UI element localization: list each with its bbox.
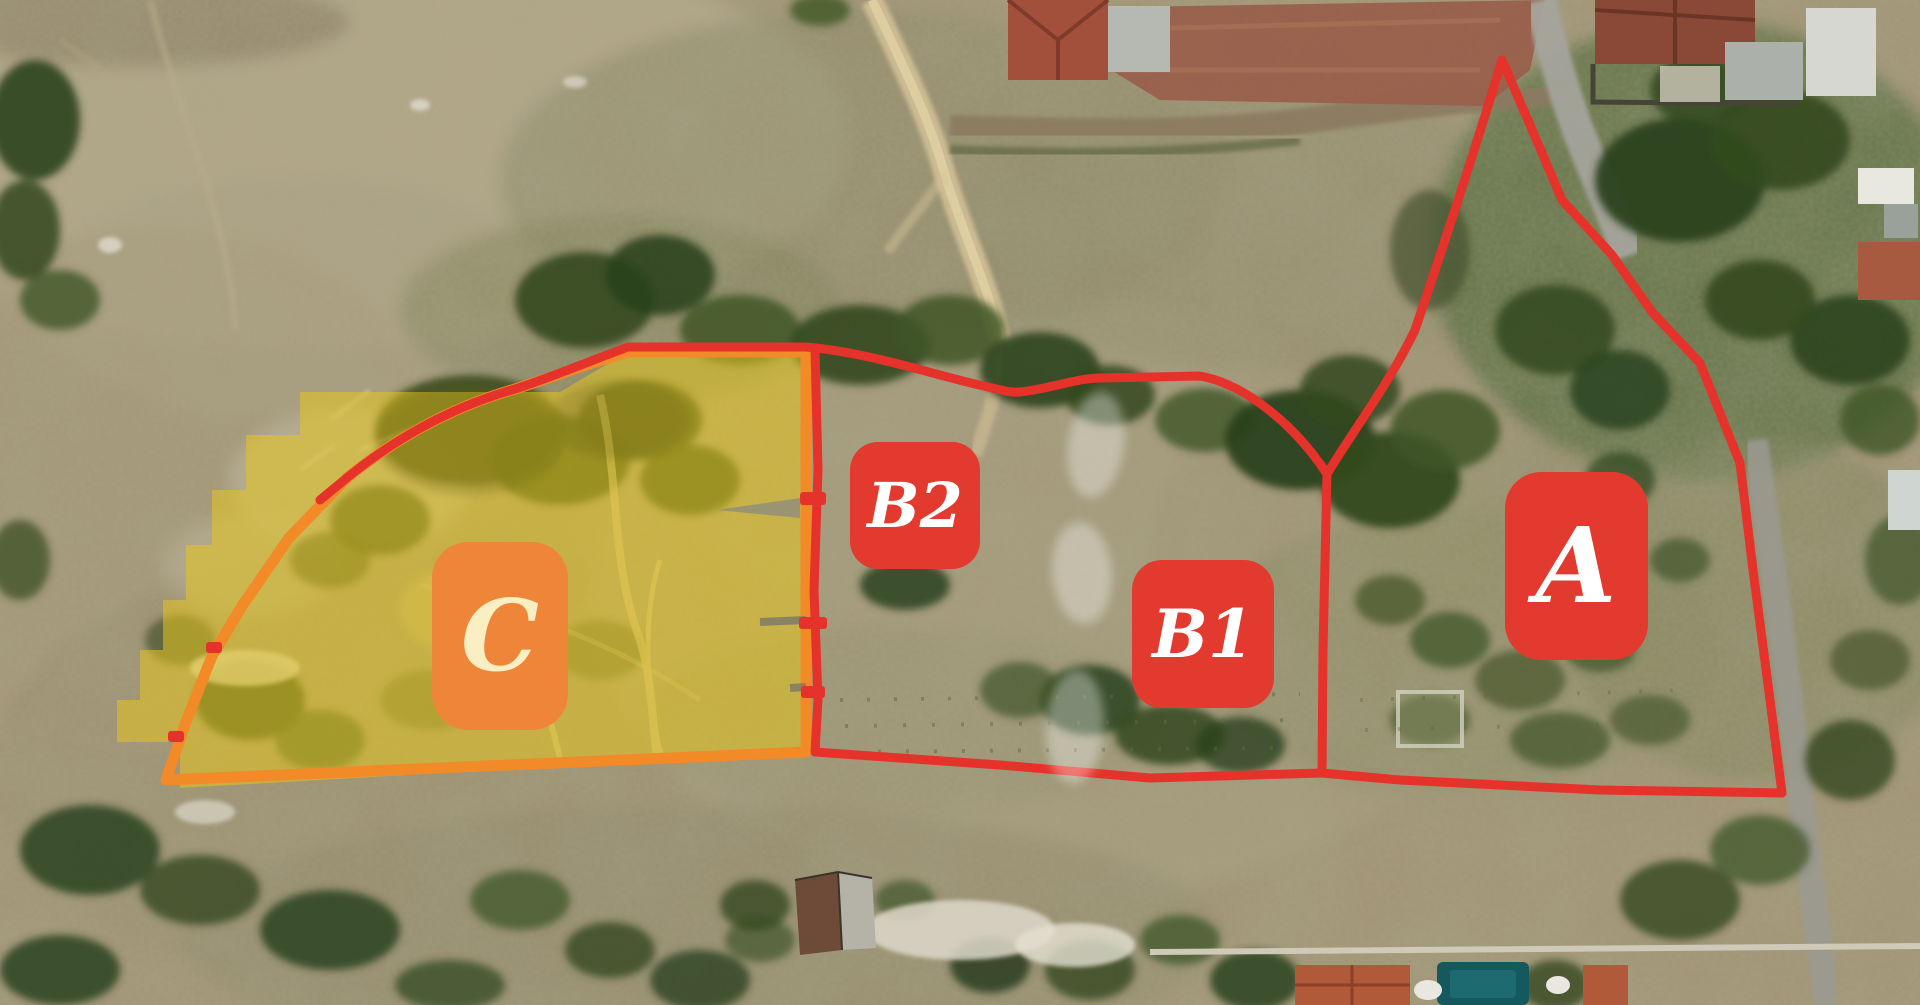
aerial-map: A B2 B1 C xyxy=(0,0,1920,1005)
garden-bed xyxy=(1398,692,1462,746)
plot-b1-label: B1 xyxy=(1150,595,1254,673)
divider-b1-a xyxy=(1322,474,1327,772)
plot-a-label: A xyxy=(1527,504,1617,627)
plot-c-badge: C xyxy=(432,542,568,730)
house-bottom-2 xyxy=(1583,965,1628,1005)
plot-b1-badge: B1 xyxy=(1132,560,1274,708)
shed-bottom-middle xyxy=(795,872,876,955)
roof-terracotta-right xyxy=(1858,242,1920,300)
white-shed xyxy=(1858,168,1914,204)
plot-b2-label: B2 xyxy=(865,469,963,542)
roof-gray-top xyxy=(1108,6,1170,72)
plot-a-badge: A xyxy=(1505,472,1648,660)
plot-b2-badge: B2 xyxy=(850,442,980,569)
plot-c-label: C xyxy=(461,579,539,694)
compound-metal-roof xyxy=(1725,42,1803,100)
right-edge-structure xyxy=(1888,470,1920,530)
aerial-scene: A B2 B1 C xyxy=(0,0,1920,1005)
compound-white-roof xyxy=(1806,8,1876,96)
